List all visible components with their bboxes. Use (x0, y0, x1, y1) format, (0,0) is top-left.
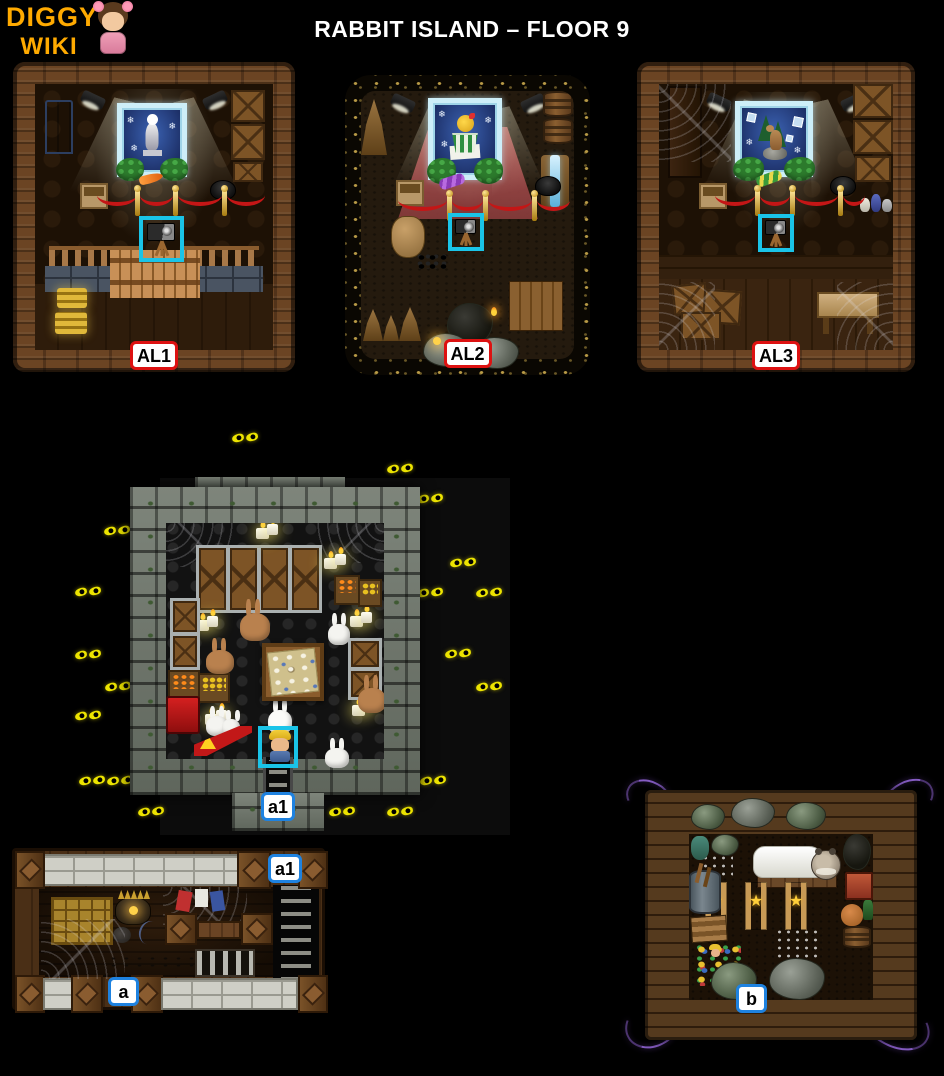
egg-map (267, 648, 319, 697)
rope (488, 199, 532, 211)
candle-icon (207, 616, 218, 627)
room-label-a1: a1 (261, 792, 295, 821)
room-label-b: b (736, 984, 767, 1013)
green-bottle (863, 900, 873, 920)
glowing-eyes (476, 682, 502, 692)
crate (173, 601, 197, 632)
snowflake-icon: ❄ (484, 116, 492, 125)
hanging-cloth-white (195, 889, 208, 907)
room-a: a1 a (12, 848, 325, 1010)
corn-crate (198, 673, 230, 703)
wood-beam (197, 921, 241, 939)
crate (231, 90, 265, 122)
room-label-al3: AL3 (752, 341, 800, 370)
glowing-eyes (75, 711, 101, 721)
wood-pillar (15, 851, 45, 889)
glowing-eyes (105, 682, 131, 692)
candle-icon (361, 612, 372, 623)
barrel (543, 118, 573, 144)
corn-crate (358, 579, 382, 607)
star-trophy-post: ★ (785, 882, 807, 930)
stall-crate (199, 548, 226, 610)
crate (855, 156, 891, 182)
glowing-eyes (75, 587, 101, 597)
room-b: ★ ★ ★ b (617, 772, 944, 1058)
glowing-eyes (420, 776, 446, 786)
velvet-rope-barrier (398, 193, 570, 223)
crate (173, 636, 197, 667)
wood-beam-block (241, 913, 273, 945)
wooden-planks (509, 281, 563, 331)
avatar-body (100, 32, 126, 54)
mossy-rock (691, 804, 725, 830)
wood-pillar (237, 851, 271, 889)
avatar-face (102, 12, 124, 31)
blue-cabinet (45, 100, 73, 154)
wood-pillar (71, 975, 103, 1013)
mossy-rock (786, 802, 826, 830)
rock (769, 958, 825, 1000)
candles (350, 611, 376, 627)
star-trophy-post: ★ (745, 882, 767, 930)
stalagmite (383, 315, 399, 341)
ladder-rungs (281, 885, 311, 981)
ice-cube-icon (785, 134, 793, 142)
cobweb (837, 282, 893, 350)
diggy-character (262, 730, 298, 764)
white-droppings (775, 928, 823, 962)
exhibit-painting-goat: ❄ ❄ (735, 101, 813, 177)
sleeping-creature-head (811, 850, 841, 880)
teal-jug (691, 836, 709, 860)
rope (843, 194, 865, 206)
camera-highlight-box (758, 214, 794, 252)
tripod-leg (465, 233, 468, 246)
snowflake-icon: ❄ (794, 146, 802, 155)
velvet-rope-barrier (95, 188, 265, 218)
ice-cube-icon (792, 116, 804, 128)
striped-cup (452, 133, 478, 153)
goat-icon (770, 130, 782, 150)
glowing-eyes (476, 588, 502, 598)
camera-icon (455, 219, 476, 233)
wood-pillar (15, 975, 45, 1013)
camera-highlight-box (139, 216, 184, 262)
wood-pillar (298, 851, 328, 889)
brown-rabbit (206, 638, 234, 674)
dark-rock (843, 834, 871, 870)
room-al1-interior: ❄ ❄ ❄ (35, 84, 273, 350)
cobweb (659, 282, 715, 350)
tiny-figure-face (711, 949, 720, 957)
tripod-leg (775, 234, 778, 247)
plank-pile (690, 915, 728, 943)
gold-bars (55, 312, 87, 334)
brown-rabbit (358, 675, 384, 713)
white-rabbit (325, 738, 349, 768)
glowing-eyes (329, 807, 355, 817)
barrel (843, 926, 871, 948)
rope (452, 199, 483, 211)
rope (227, 194, 265, 206)
glowing-eyes (417, 588, 443, 598)
wreath-icon (160, 158, 188, 181)
rock (731, 798, 775, 828)
diggy-body (270, 751, 290, 762)
room-al2: ❄ ❄ ❄ (345, 75, 590, 375)
snowflake-icon: ❄ (745, 138, 753, 147)
room-al3-interior: ❄ ❄ (659, 84, 893, 350)
diggy-highlight-box (258, 726, 298, 768)
logo-line-1: DIGGY'S (6, 2, 92, 33)
tripod-leg (160, 241, 163, 257)
crate (853, 120, 893, 154)
camera-icon (765, 220, 786, 234)
flower-icon (93, 1, 104, 12)
room-label-a1-exit: a1 (268, 854, 302, 883)
white-brick-wall (43, 978, 73, 1010)
wiki-map-page: DIGGY'S WIKI RABBIT ISLAND – FLOOR 9 ❄ ❄ (0, 0, 944, 1076)
glowing-eyes (79, 776, 105, 786)
room-label-a: a (108, 977, 139, 1006)
gold-bars (57, 288, 87, 308)
snowflake-icon: ❄ (438, 110, 446, 119)
cobweb (659, 84, 731, 162)
footprints (107, 955, 197, 971)
glowing-eyes (104, 526, 130, 536)
crate (231, 124, 265, 160)
candles (324, 553, 350, 569)
avatar (90, 0, 136, 58)
barrel-with-tools (689, 870, 721, 914)
lantern-glow (433, 337, 441, 345)
mossy-rock (711, 834, 739, 856)
wood-beam-block (165, 913, 197, 945)
rope (398, 199, 447, 211)
chick-icon (457, 115, 474, 132)
crate (233, 162, 263, 182)
warning-sign-icon (200, 735, 216, 749)
room-label-al2: AL2 (443, 339, 491, 368)
exhibit-painting-snowman: ❄ ❄ ❄ (117, 103, 187, 177)
room-label-al1: AL1 (130, 341, 178, 370)
wreath-icon (474, 158, 503, 184)
wiki-logo: DIGGY'S WIKI (6, 2, 92, 61)
glowing-eyes (75, 650, 101, 660)
stalagmite (399, 307, 421, 341)
candles (256, 523, 282, 539)
red-machine (166, 696, 200, 734)
barrel (543, 91, 573, 117)
star-icon: ★ (749, 894, 763, 910)
jar-icon (871, 194, 881, 212)
candle-icon (335, 554, 346, 565)
glowing-eyes (445, 649, 471, 659)
chamber-interior (166, 523, 384, 759)
camera-highlight-box (448, 213, 484, 251)
crate (853, 84, 893, 118)
glowing-eyes (138, 807, 164, 817)
room-al3: ❄ ❄ (637, 62, 915, 372)
stall-crate (292, 548, 319, 610)
rope (715, 194, 755, 206)
glowing-eyes (450, 558, 476, 568)
crate (351, 641, 379, 667)
ice-cube-icon (746, 112, 757, 123)
stalagmite (363, 309, 383, 341)
room-a1-zone: a1 (75, 420, 525, 835)
rope (537, 199, 570, 211)
brown-rabbit (240, 599, 270, 641)
rope (140, 194, 173, 206)
snowflake-icon: ❄ (130, 144, 138, 153)
red-box (845, 872, 873, 900)
vegetable-crate (334, 575, 360, 605)
torch-flame-icon (491, 307, 497, 316)
candle-icon (267, 524, 278, 535)
coal-pieces (416, 253, 450, 269)
hanging-cloth-blue (210, 890, 226, 912)
stalagmite (361, 99, 387, 155)
wood-pillar (298, 975, 328, 1013)
exhibit-painting-chick: ❄ ❄ ❄ (428, 98, 502, 180)
jar-icon (882, 199, 892, 212)
glowing-eyes (232, 433, 258, 443)
diggy-face (271, 738, 289, 752)
room-al2-interior: ❄ ❄ ❄ (361, 91, 574, 359)
white-brick-wall (161, 978, 298, 1010)
snowman-statue-icon (146, 123, 159, 150)
page-title: RABBIT ISLAND – FLOOR 9 (314, 16, 630, 43)
rope (760, 194, 790, 206)
glowing-eyes (387, 464, 413, 474)
map-table (262, 643, 324, 701)
star-icon: ★ (789, 894, 803, 910)
camera-icon (147, 223, 174, 241)
gold-glow (129, 906, 138, 915)
snowflake-icon: ❄ (127, 116, 135, 125)
logo-line-2: WIKI (6, 33, 92, 61)
flower-icon (122, 1, 133, 12)
snowflake-icon: ❄ (441, 140, 449, 149)
white-brick-wall (43, 854, 239, 886)
snowflake-icon: ❄ (168, 122, 176, 131)
plank-wall (659, 255, 893, 279)
glowing-eyes (417, 494, 443, 504)
wreath-icon (784, 157, 815, 181)
metal-grate (195, 949, 255, 977)
chick-in-cup-icon (450, 115, 480, 155)
rope (97, 194, 137, 206)
white-rabbit (328, 613, 350, 645)
glowing-eyes (387, 807, 413, 817)
stair-shaft (273, 885, 319, 981)
clay-pot (841, 904, 863, 926)
room-al1: ❄ ❄ ❄ (13, 62, 295, 372)
rope (795, 194, 838, 206)
table-leg (823, 318, 829, 334)
rope (178, 194, 222, 206)
framed-crates (170, 598, 200, 670)
